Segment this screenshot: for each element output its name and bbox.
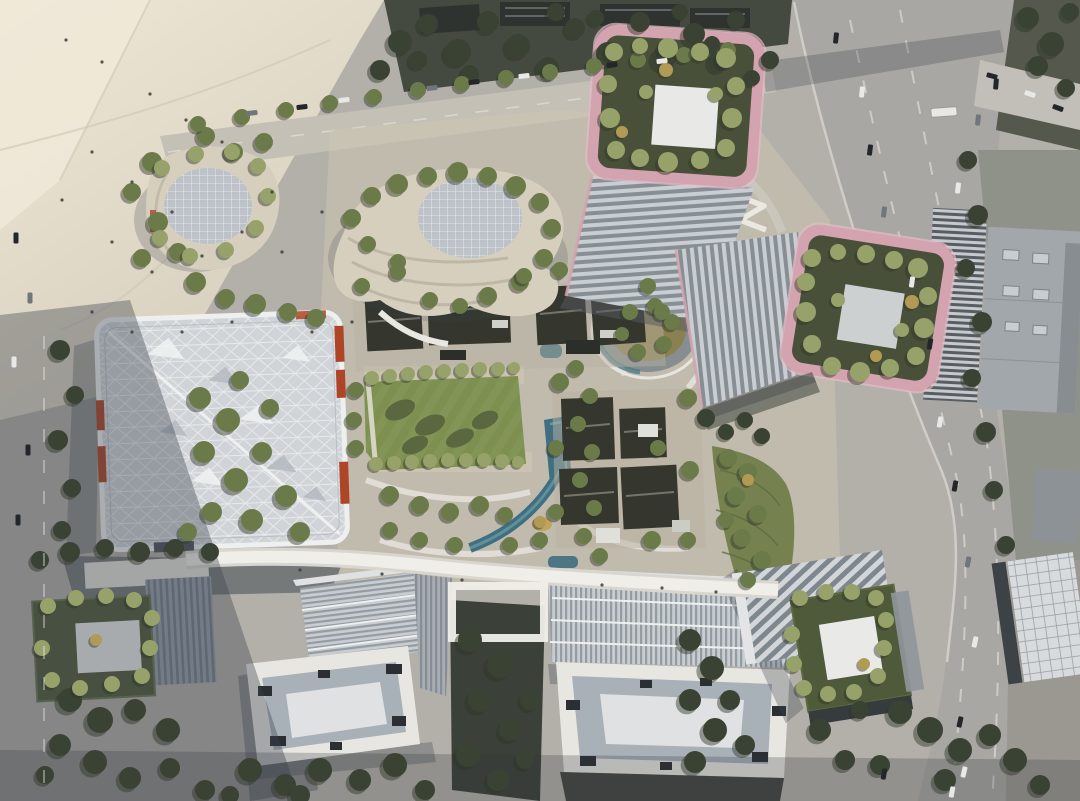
- tree: [850, 362, 870, 382]
- tree: [36, 766, 54, 784]
- tree: [218, 242, 234, 258]
- tree: [497, 507, 513, 523]
- tree: [568, 360, 584, 376]
- tree: [718, 424, 734, 440]
- tree: [119, 767, 141, 789]
- tree: [409, 51, 427, 69]
- tree: [703, 718, 727, 742]
- tree: [572, 472, 588, 488]
- tree: [370, 60, 390, 80]
- tree: [551, 373, 569, 391]
- tree: [797, 273, 815, 291]
- aerial-rendering-stage: [0, 0, 1080, 801]
- tree: [547, 3, 565, 21]
- tree: [423, 454, 437, 468]
- tree: [681, 461, 699, 479]
- tree: [709, 87, 723, 101]
- tree: [979, 724, 1001, 746]
- tree: [870, 350, 882, 362]
- tree: [419, 167, 437, 185]
- tree: [195, 780, 215, 800]
- office-small-south: [1032, 469, 1080, 543]
- tree: [630, 12, 650, 32]
- tree: [383, 369, 397, 383]
- pedestrian: [90, 310, 93, 313]
- tree: [487, 769, 509, 791]
- tree: [905, 295, 919, 309]
- tree: [858, 658, 870, 670]
- tree: [387, 456, 401, 470]
- tree: [190, 116, 206, 132]
- tree: [919, 287, 937, 305]
- tree: [144, 610, 160, 626]
- tree: [643, 531, 661, 549]
- tree: [656, 336, 672, 352]
- tree: [792, 590, 808, 606]
- tree: [48, 430, 68, 450]
- pedestrian: [320, 210, 323, 213]
- tree: [972, 312, 992, 332]
- tree: [348, 382, 364, 398]
- tree: [186, 272, 206, 292]
- tree: [870, 755, 890, 775]
- tree: [104, 676, 120, 692]
- pedestrian: [100, 60, 103, 63]
- tree: [40, 598, 56, 614]
- car: [14, 233, 19, 244]
- tree: [260, 188, 276, 204]
- tree: [383, 753, 407, 777]
- tree: [679, 389, 697, 407]
- tree: [659, 63, 673, 77]
- tree: [491, 362, 505, 376]
- tree: [600, 108, 620, 128]
- tree: [630, 344, 646, 360]
- tree: [586, 58, 602, 74]
- tree: [727, 487, 745, 505]
- tree: [584, 444, 600, 460]
- tree: [870, 668, 886, 684]
- car: [26, 445, 31, 456]
- tree: [152, 230, 168, 246]
- tree: [823, 357, 841, 375]
- tree: [96, 539, 114, 557]
- tree: [640, 278, 656, 294]
- tree: [388, 30, 412, 54]
- tree: [622, 304, 638, 320]
- tree: [543, 219, 561, 237]
- tree: [1057, 79, 1075, 97]
- tree: [632, 38, 648, 54]
- tree: [388, 174, 408, 194]
- tree: [1061, 3, 1079, 21]
- tree: [803, 249, 821, 267]
- pedestrian: [150, 270, 153, 273]
- tree: [516, 268, 532, 284]
- tree: [753, 551, 771, 569]
- tree: [846, 684, 862, 700]
- tree: [844, 584, 860, 600]
- tree: [189, 387, 211, 409]
- tree: [631, 149, 649, 167]
- tree: [718, 512, 734, 528]
- tree: [615, 327, 629, 341]
- tree: [134, 668, 150, 684]
- tree: [455, 363, 469, 377]
- tree: [182, 248, 198, 264]
- tree: [542, 64, 558, 80]
- car: [16, 515, 21, 526]
- tree: [217, 289, 235, 307]
- car: [993, 78, 999, 89]
- tree: [727, 77, 745, 95]
- tree: [252, 442, 272, 462]
- pedestrian: [714, 590, 717, 593]
- tree: [857, 245, 875, 263]
- tree: [60, 542, 80, 562]
- tree: [83, 750, 107, 774]
- tree: [742, 474, 754, 486]
- tree: [835, 750, 855, 770]
- tree: [148, 212, 168, 232]
- tree: [534, 516, 546, 528]
- tree: [959, 151, 977, 169]
- tree: [552, 262, 568, 278]
- pedestrian: [130, 330, 133, 333]
- tree: [531, 193, 549, 211]
- pedestrian: [180, 330, 183, 333]
- tree: [411, 496, 429, 514]
- tree: [412, 532, 428, 548]
- tree: [126, 592, 142, 608]
- tree: [363, 187, 381, 205]
- tree: [749, 505, 767, 523]
- white-box: [638, 424, 658, 437]
- tree: [250, 158, 266, 174]
- tree: [322, 95, 338, 111]
- tree: [419, 365, 433, 379]
- pedestrian: [130, 180, 133, 183]
- tower-south-pad: [837, 284, 905, 349]
- tree: [202, 502, 222, 522]
- tree: [506, 34, 530, 58]
- pedestrian: [200, 254, 203, 257]
- tree: [498, 70, 514, 86]
- bus: [931, 107, 958, 118]
- tree: [876, 640, 892, 656]
- tree: [445, 39, 471, 65]
- tree: [720, 690, 740, 710]
- tree: [142, 640, 158, 656]
- tree: [697, 409, 715, 427]
- tree: [495, 454, 509, 468]
- tree: [683, 23, 705, 45]
- pedestrian: [298, 568, 301, 571]
- tree: [888, 700, 912, 724]
- tree: [914, 318, 934, 338]
- tree: [360, 236, 376, 252]
- tree: [246, 294, 266, 314]
- tree: [179, 523, 197, 541]
- white-box: [672, 520, 690, 532]
- tree: [508, 362, 520, 374]
- tree: [1003, 748, 1027, 772]
- pedestrian: [148, 92, 151, 95]
- tree: [366, 89, 382, 105]
- tree: [968, 205, 988, 225]
- tree: [241, 509, 263, 531]
- tree: [754, 428, 770, 444]
- tree: [458, 628, 482, 652]
- pedestrian: [64, 38, 67, 41]
- tree: [405, 455, 419, 469]
- tree: [506, 176, 526, 196]
- tree: [830, 244, 846, 260]
- tree: [520, 690, 540, 710]
- tree: [448, 162, 468, 182]
- tree: [72, 680, 88, 696]
- pedestrian: [220, 140, 223, 143]
- tree: [740, 572, 756, 588]
- pedestrian: [60, 198, 63, 201]
- tree: [156, 718, 180, 742]
- tree: [818, 584, 834, 600]
- tree: [700, 656, 724, 680]
- tree: [691, 151, 709, 169]
- tree: [123, 183, 141, 201]
- skylight: [492, 320, 508, 328]
- pedestrian: [460, 578, 463, 581]
- tree: [679, 629, 701, 651]
- pedestrian: [184, 118, 187, 121]
- tree: [516, 751, 534, 769]
- pedestrian: [310, 330, 313, 333]
- tree: [441, 503, 459, 521]
- tree: [1017, 7, 1039, 29]
- tree: [733, 529, 751, 547]
- tree: [761, 51, 779, 69]
- tree: [238, 758, 262, 782]
- tree: [820, 686, 836, 702]
- tree: [582, 388, 598, 404]
- tree: [307, 309, 325, 327]
- tree: [278, 102, 294, 118]
- tree: [473, 362, 487, 376]
- tree: [803, 335, 821, 353]
- tree: [878, 612, 894, 628]
- tree: [881, 359, 899, 377]
- tree: [684, 751, 706, 773]
- tree: [570, 416, 586, 432]
- tree: [343, 209, 361, 227]
- tree: [487, 652, 513, 678]
- tree: [275, 485, 297, 507]
- tree: [658, 38, 678, 58]
- tree: [727, 11, 745, 29]
- podium-connector-shade: [414, 574, 452, 696]
- tree: [576, 528, 592, 544]
- tree: [548, 440, 564, 456]
- tree: [639, 85, 653, 99]
- tree: [381, 486, 399, 504]
- pedestrian: [230, 320, 233, 323]
- tree: [90, 634, 102, 646]
- tree: [722, 108, 742, 128]
- tree: [535, 249, 553, 267]
- tree: [717, 139, 735, 157]
- tree: [346, 412, 362, 428]
- tree: [908, 258, 928, 278]
- tree: [907, 347, 925, 365]
- tree: [1030, 775, 1050, 795]
- tree: [809, 719, 831, 741]
- tree: [605, 43, 623, 61]
- car: [28, 293, 33, 304]
- tree: [477, 453, 491, 467]
- heritage-roof: [620, 465, 679, 530]
- tree: [231, 371, 249, 389]
- heritage-annex: [566, 340, 600, 354]
- white-box: [596, 528, 620, 543]
- tree: [868, 590, 884, 606]
- pedestrian: [90, 150, 93, 153]
- tree: [382, 522, 398, 538]
- tree: [290, 522, 310, 542]
- tree: [390, 264, 406, 280]
- tree: [784, 626, 800, 642]
- tree: [418, 14, 438, 34]
- tree: [160, 758, 180, 778]
- tree: [719, 449, 737, 467]
- tree: [607, 141, 625, 159]
- tree: [477, 11, 499, 33]
- tree: [224, 144, 240, 160]
- tree: [586, 500, 602, 516]
- tree: [957, 259, 975, 277]
- tree: [885, 251, 903, 269]
- tree: [786, 656, 802, 672]
- tree: [985, 481, 1003, 499]
- tree: [201, 543, 219, 561]
- tree: [917, 717, 943, 743]
- tree: [369, 457, 383, 471]
- tree: [1040, 32, 1064, 56]
- tree: [31, 551, 49, 569]
- tree: [471, 496, 489, 514]
- car: [12, 357, 17, 368]
- pedestrian: [350, 320, 353, 323]
- tree: [63, 479, 81, 497]
- tree: [679, 689, 701, 711]
- tree: [130, 542, 150, 562]
- tree: [441, 453, 455, 467]
- tree: [948, 738, 972, 762]
- tree: [831, 293, 845, 307]
- tree: [261, 399, 279, 417]
- tree: [354, 278, 370, 294]
- tree: [68, 590, 84, 606]
- tree: [963, 369, 981, 387]
- tree: [654, 304, 670, 320]
- tree: [468, 688, 492, 712]
- tree: [744, 70, 760, 86]
- pedestrian: [170, 210, 173, 213]
- tree: [650, 440, 666, 456]
- tree: [691, 43, 709, 61]
- tree: [548, 504, 564, 520]
- tree: [124, 699, 146, 721]
- tree: [349, 769, 371, 791]
- tree: [49, 734, 71, 756]
- pedestrian: [380, 572, 383, 575]
- tree: [348, 440, 364, 456]
- pedestrian: [280, 250, 283, 253]
- tree: [796, 680, 812, 696]
- tree: [454, 76, 470, 92]
- tree: [479, 287, 497, 305]
- tree: [401, 367, 415, 381]
- tree: [532, 532, 548, 548]
- pedestrian: [110, 240, 113, 243]
- tree: [98, 588, 114, 604]
- tree: [365, 371, 379, 385]
- tree: [437, 364, 451, 378]
- tree: [997, 536, 1015, 554]
- tree: [796, 302, 816, 322]
- pedestrian: [600, 583, 603, 586]
- tree: [422, 292, 438, 308]
- tree: [410, 82, 426, 98]
- tree: [452, 298, 468, 314]
- tree: [592, 548, 608, 564]
- pedestrian: [240, 230, 243, 233]
- tree: [188, 146, 204, 162]
- tree: [459, 453, 473, 467]
- tree: [154, 160, 170, 176]
- tree: [716, 48, 736, 68]
- tree: [895, 323, 909, 337]
- tree: [680, 532, 696, 548]
- tree: [248, 220, 264, 236]
- tree: [658, 152, 678, 172]
- tree: [87, 707, 113, 733]
- tree: [479, 167, 497, 185]
- tree: [851, 701, 869, 719]
- tree: [499, 719, 521, 741]
- tree: [1028, 56, 1048, 76]
- tree: [565, 18, 585, 38]
- tree: [193, 441, 215, 463]
- tree: [44, 672, 60, 688]
- tree: [66, 386, 84, 404]
- tree: [224, 468, 248, 492]
- tree: [133, 249, 151, 267]
- tree: [34, 640, 50, 656]
- tree: [512, 456, 524, 468]
- tree: [415, 780, 435, 800]
- tree: [502, 537, 518, 553]
- tree: [279, 303, 297, 321]
- tree: [976, 422, 996, 442]
- tree: [216, 408, 240, 432]
- tree: [53, 521, 71, 539]
- tree: [672, 4, 688, 20]
- aerial-rendering: [0, 0, 1080, 801]
- tree: [50, 340, 70, 360]
- tree: [616, 126, 628, 138]
- pedestrian: [660, 586, 663, 589]
- pond-south: [548, 556, 578, 568]
